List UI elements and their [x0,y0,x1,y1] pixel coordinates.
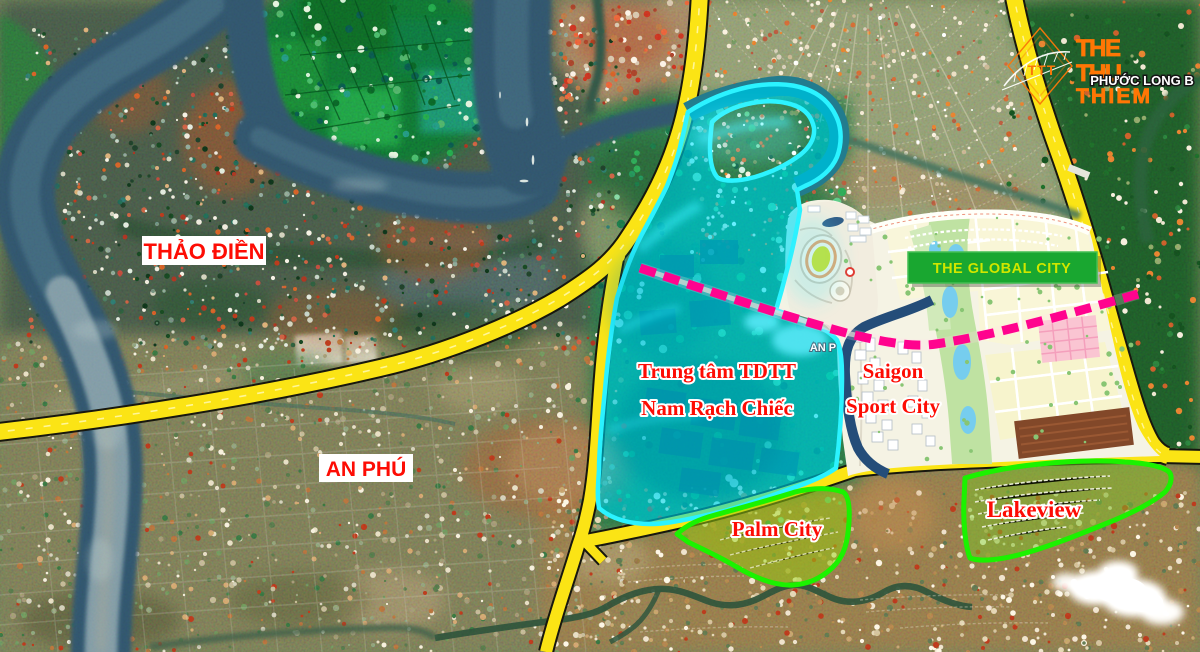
svg-text:Palm City: Palm City [732,517,823,541]
svg-text:Saigon: Saigon [863,359,924,383]
svg-text:Nam Rạch Chiếc: Nam Rạch Chiếc [641,396,793,420]
svg-text:Sport City: Sport City [846,394,940,418]
svg-text:PHƯỚC LONG B: PHƯỚC LONG B [1090,73,1194,88]
svg-text:TTT: TTT [1028,62,1057,78]
svg-text:Trung tâm TDTT: Trung tâm TDTT [638,359,796,383]
svg-text:AN PHÚ: AN PHÚ [326,457,407,481]
svg-text:THE: THE [1076,35,1121,62]
svg-text:THẢO ĐIỀN: THẢO ĐIỀN [144,239,265,264]
svg-text:THE GLOBAL CITY: THE GLOBAL CITY [933,261,1072,277]
svg-text:AN P: AN P [810,342,836,354]
svg-text:Lakeview: Lakeview [987,497,1082,522]
svg-text:THIEM: THIEM [1076,85,1150,108]
